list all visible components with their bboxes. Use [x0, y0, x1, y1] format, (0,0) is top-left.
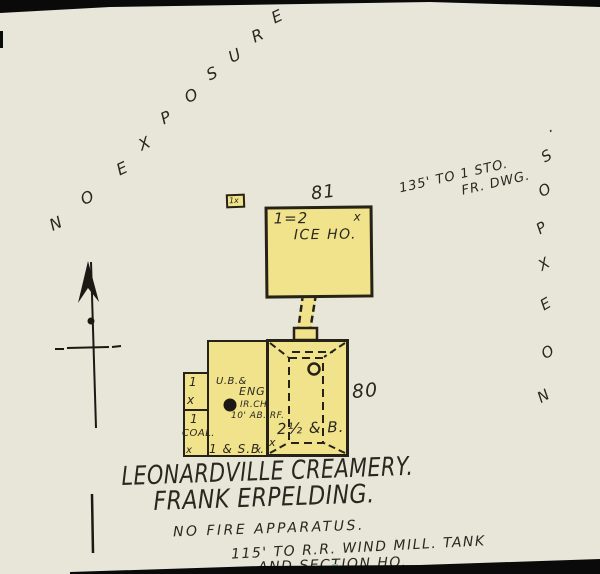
scan-edge-layer	[0, 0, 600, 574]
scan-edge-top	[0, 0, 600, 13]
scan-edge-left-mark	[0, 31, 3, 48]
sanborn-map-page: 1x 1=2 x ICE HO. N O E X P O S U	[0, 0, 600, 574]
scan-edge-bottom	[70, 559, 600, 574]
